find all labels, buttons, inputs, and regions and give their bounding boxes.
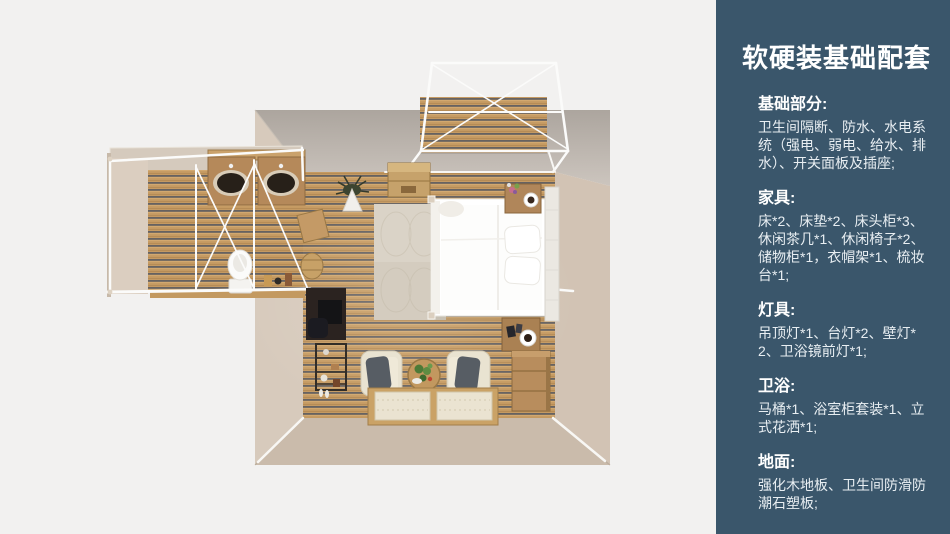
section-heading: 卫浴: [758,378,936,396]
section-heading: 基础部分: [758,96,936,114]
wardrobe-door [545,187,559,321]
section-body: 吊顶灯*1、台灯*2、壁灯*2、卫浴镜前灯*1; [758,324,936,360]
coffee-table [408,359,440,391]
section-heading: 家具: [758,190,936,208]
section-lighting: 灯具: 吊顶灯*1、台灯*2、壁灯*2、卫浴镜前灯*1; [758,302,936,360]
section-body: 马桶*1、浴室柜套装*1、立式花洒*1; [758,400,936,436]
section-furniture: 家具: 床*2、床垫*2、床头柜*3、休闲茶几*1、休闲椅子*2、储物柜*1，衣… [758,190,936,284]
panel-title: 软硬装基础配套 [742,42,936,74]
floorplan-render [0,0,716,534]
section-body: 床*2、床垫*2、床头柜*3、休闲茶几*1、休闲椅子*2、储物柜*1，衣帽架*1… [758,212,936,284]
tatami-platform [368,388,498,425]
desk [306,288,346,340]
section-body: 强化木地板、卫生间防滑防潮石塑板; [758,476,936,512]
floorplan-canvas [0,0,716,534]
nightstand-top [505,183,541,213]
slide: 软硬装基础配套 基础部分: 卫生间隔断、防水、水电系统（强电、弱电、给水、排水）… [0,0,950,534]
section-basics: 基础部分: 卫生间隔断、防水、水电系统（强电、弱电、给水、排水）、开关面板及插座… [758,96,936,172]
info-panel: 软硬装基础配套 基础部分: 卫生间隔断、防水、水电系统（强电、弱电、给水、排水）… [716,0,950,534]
nightstand-bottom [502,318,540,351]
toilet [228,250,252,293]
porch-deck [420,97,547,154]
section-heading: 灯具: [758,302,936,320]
wood-crate [388,163,430,197]
section-heading: 地面: [758,454,936,472]
section-bathroom: 卫浴: 马桶*1、浴室柜套装*1、立式花洒*1; [758,378,936,436]
storage-chest [512,351,550,411]
section-body: 卫生间隔断、防水、水电系统（强电、弱电、给水、排水）、开关面板及插座; [758,118,936,172]
section-flooring: 地面: 强化木地板、卫生间防滑防潮石塑板; [758,454,936,512]
